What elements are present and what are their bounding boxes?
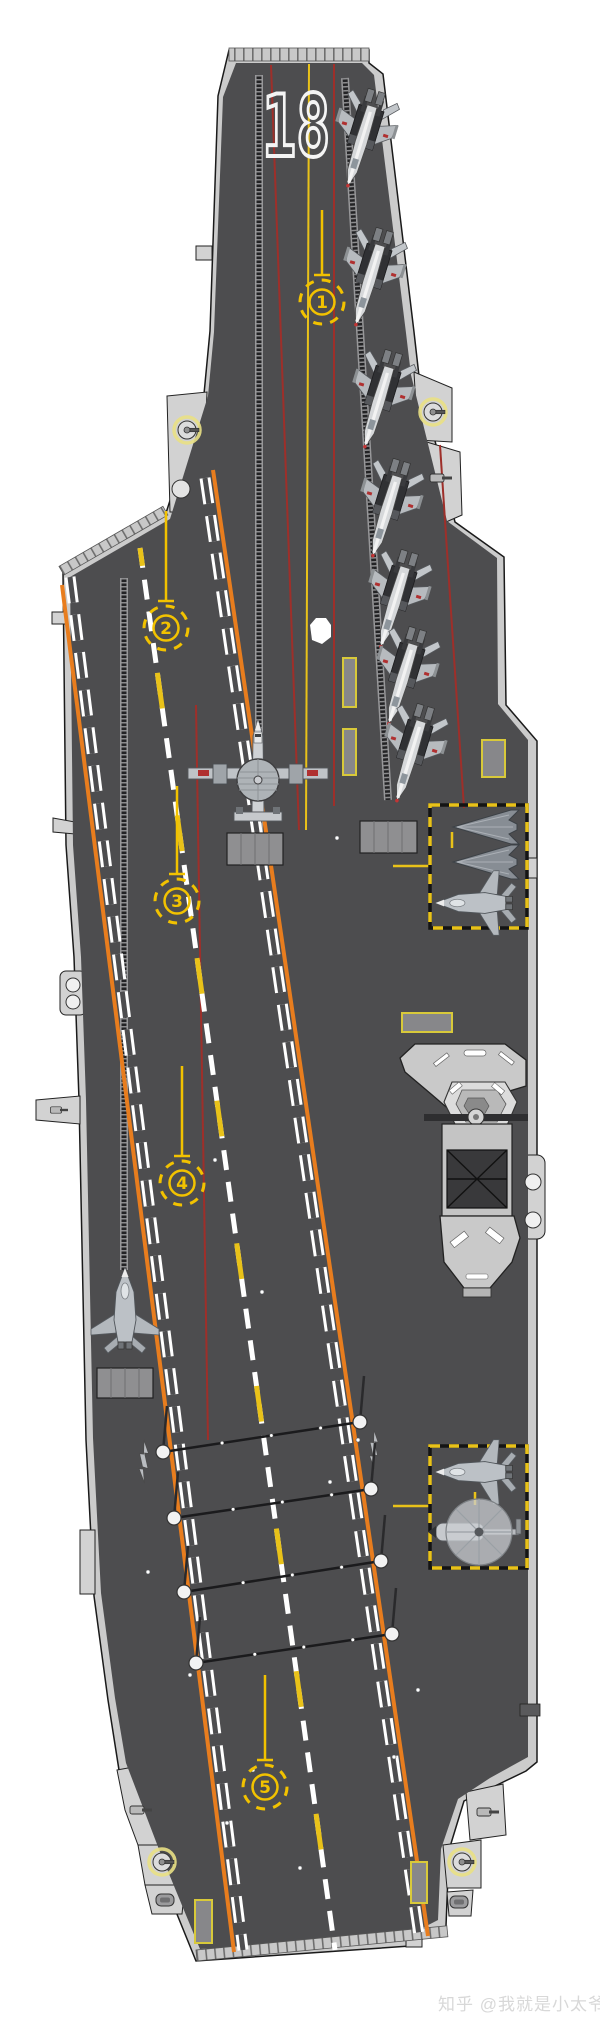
- liferaft-stbd-2: [525, 1212, 541, 1228]
- island-aft-step: [463, 1288, 491, 1297]
- spot-number: 2: [160, 619, 172, 639]
- watermark: 知乎 @我就是小太爷: [438, 1990, 598, 2015]
- port-walkway-block: [80, 1530, 95, 1594]
- port-bow-tab: [196, 246, 212, 260]
- walkway-connector: [520, 1704, 540, 1716]
- spot-number: 1: [316, 293, 328, 313]
- island-top-window: [464, 1050, 486, 1056]
- hull-number: 18: [262, 77, 330, 177]
- deck-plan-svg: 18 12345: [0, 0, 600, 2030]
- island-mast-hub-core: [473, 1114, 479, 1120]
- hull-number-text: 18: [262, 77, 330, 177]
- liferaft-port-1: [66, 978, 80, 992]
- liferaft-port-2: [66, 995, 80, 1009]
- liferaft-stbd-1: [525, 1174, 541, 1190]
- flight-deck: [70, 63, 528, 1949]
- island-aft-window-bottom: [466, 1274, 488, 1279]
- carrier-deck-diagram: 18 12345 知乎 @我就是小太爷: [0, 0, 600, 2030]
- spot-number: 5: [259, 1778, 271, 1798]
- bow-netting: [229, 48, 369, 61]
- spot-number: 4: [176, 1174, 188, 1194]
- port-sensor-dome: [172, 480, 190, 498]
- spot-number: 3: [171, 892, 183, 912]
